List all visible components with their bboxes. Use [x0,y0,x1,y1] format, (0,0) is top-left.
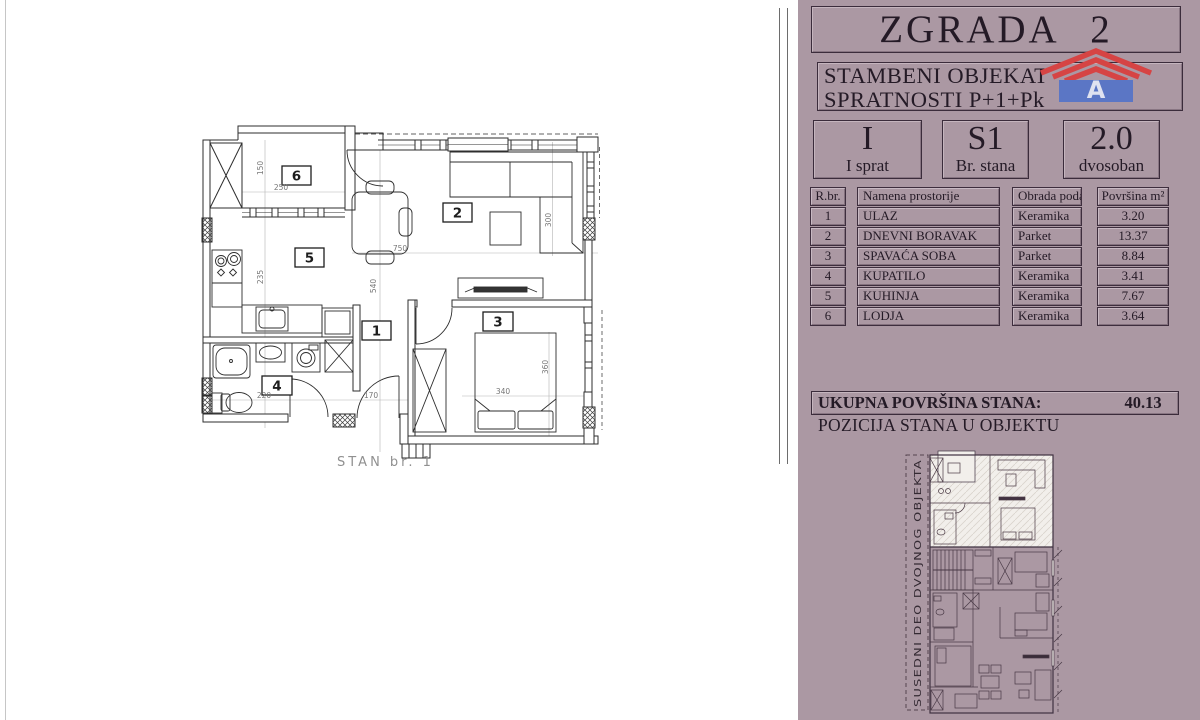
door-bathroom [290,379,328,417]
dimension-label: 750 [393,244,408,253]
row-name: KUHINJA [857,287,1000,306]
floor-info-box: I I sprat [813,120,922,179]
apartment-number-label: Br. stana [943,157,1028,175]
dimension-labels: 150 250 235 750 540 300 220 170 340 360 [256,161,553,400]
row-num: 2 [810,227,846,246]
row-floor: Keramika [1012,287,1082,306]
hall-closet-icon [325,340,353,372]
bed-icon [475,333,556,432]
dimension-label: 360 [541,360,550,375]
brochure-page: 6 2 5 1 4 3 150 250 235 750 540 300 220 … [0,0,1200,720]
row-num: 1 [810,207,846,226]
wardrobe-icon [413,349,446,432]
info-panel: ZGRADA 2 STAMBENI OBJEKAT SPRATNOSTI P+1… [798,0,1200,720]
row-floor: Parket [1012,247,1082,266]
kitchen-fixtures [212,250,353,372]
svg-text:6: 6 [292,169,301,185]
row-num: 3 [810,247,846,266]
row-floor: Keramika [1012,267,1082,286]
col-header-namena: Namena prostorije [857,187,1000,206]
row-area: 7.67 [1097,287,1169,306]
row-num: 6 [810,307,846,326]
total-area-value: 40.13 [1112,392,1174,413]
dimension-label: 150 [256,161,265,176]
dimension-label: 540 [369,279,378,294]
total-area-box: UKUPNA POVRŠINA STANA: 40.13 [811,391,1179,415]
svg-text:2: 2 [453,206,462,222]
row-name: SPAVAĆA SOBA [857,247,1000,266]
total-area-label: UKUPNA POVRŠINA STANA: [818,392,1041,413]
neighbour-strip: SUSEDNI DEO DVOJNOG OBJEKTA [906,455,928,710]
other-apartments [930,547,1062,713]
apartment-number-value: S1 [943,121,1028,157]
dimension-label: 220 [257,391,272,400]
building-outline [930,451,1053,713]
dimension-label: 250 [274,183,289,192]
col-header-rbr: R.br. [810,187,846,206]
svg-text:5: 5 [305,251,314,267]
dimension-label: 340 [496,387,511,396]
lodja-window-icon [210,143,242,208]
coffee-table-icon [490,212,521,245]
row-num: 4 [810,267,846,286]
row-name: DNEVNI BORAVAK [857,227,1000,246]
bedroom-furniture [413,333,556,432]
svg-text:1: 1 [372,324,381,340]
row-area: 3.64 [1097,307,1169,326]
building-position-plan: SUSEDNI DEO DVOJNOG OBJEKTA [903,450,1193,718]
apartment-type-box: 2.0 dvosoban [1063,120,1160,179]
row-name: LODJA [857,307,1000,326]
room-label-1: 1 [362,321,391,340]
dimension-label: 235 [256,270,265,285]
row-num: 5 [810,287,846,306]
apartment-type-value: 2.0 [1064,121,1159,157]
floor-value: I [814,121,921,157]
dimension-label: 170 [364,391,379,400]
room-label-5: 5 [295,248,324,267]
room-label-3: 3 [483,312,513,331]
dimension-label: 300 [544,213,553,228]
col-header-povrsina: Površina m² [1097,187,1169,206]
scan-artifact-lines [6,0,788,720]
row-area: 3.20 [1097,207,1169,226]
row-floor: Keramika [1012,207,1082,226]
row-name: KUPATILO [857,267,1000,286]
row-area: 13.37 [1097,227,1169,246]
svg-text:A: A [1087,76,1106,104]
position-section-label: POZICIJA STANA U OBJEKTU [818,415,1060,436]
row-floor: Parket [1012,227,1082,246]
construction-lines [206,134,598,452]
apartment-type-label: dvosoban [1064,157,1159,175]
row-name: ULAZ [857,207,1000,226]
floor-label: I sprat [814,157,921,175]
col-header-obrada: Obrada poda [1012,187,1082,206]
agency-roof-logo-icon: A [1035,48,1157,105]
neighbour-strip-label: SUSEDNI DEO DVOJNOG OBJEKTA [913,459,924,707]
room-label-2: 2 [443,203,472,222]
row-area: 8.84 [1097,247,1169,266]
door-bedroom [416,308,452,344]
apartment-number-box: S1 Br. stana [942,120,1029,179]
svg-text:3: 3 [493,315,502,331]
row-floor: Keramika [1012,307,1082,326]
floor-plan-drawing: 6 2 5 1 4 3 150 250 235 750 540 300 220 … [0,0,800,720]
tv-cabinet-icon [458,278,543,298]
building-title: ZGRADA 2 [879,7,1113,52]
row-area: 3.41 [1097,267,1169,286]
apartment-name-label: STAN br. 1 [337,455,434,470]
svg-text:4: 4 [272,379,281,395]
building-title-box: ZGRADA 2 [811,6,1181,53]
